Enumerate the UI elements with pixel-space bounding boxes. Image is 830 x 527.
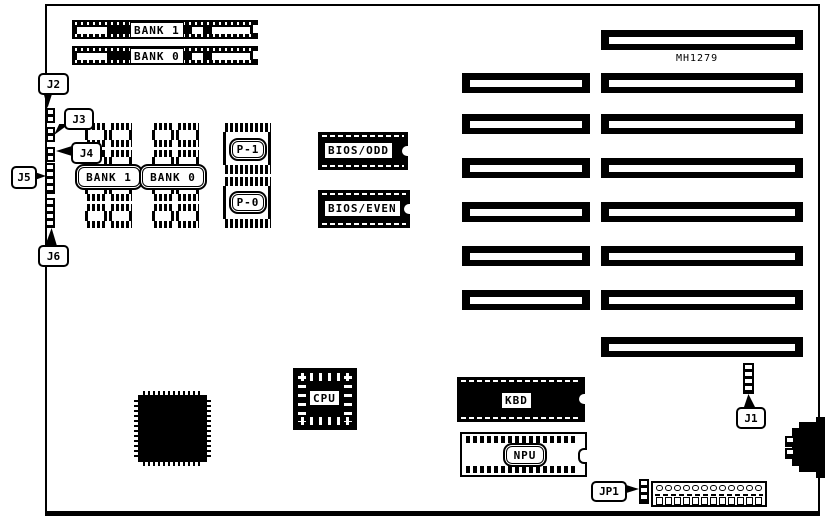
pin-dashes	[322, 135, 404, 137]
power-divider	[655, 494, 763, 496]
chip-notch	[402, 146, 408, 156]
isa-slot	[462, 202, 590, 222]
isa-slot	[462, 73, 590, 93]
isa-slot	[601, 246, 803, 266]
pin-dashes	[322, 193, 406, 195]
memory-chip	[109, 123, 132, 147]
callout-tail	[56, 146, 72, 156]
connector-label-j6: J6	[38, 245, 69, 267]
callout-tail	[744, 394, 755, 407]
power-pins-top	[656, 485, 762, 491]
chip-notch	[579, 394, 585, 404]
cpu-pins	[344, 376, 352, 422]
simm-slot-opening	[192, 27, 203, 34]
isa-slot	[601, 158, 803, 178]
memory-chip	[152, 123, 174, 147]
power-connector	[651, 481, 767, 507]
connector-label-j5: J5	[11, 166, 37, 189]
isa-slot	[462, 114, 590, 134]
chip-notch	[404, 204, 410, 214]
memory-bank1-label: BANK 1	[78, 167, 140, 187]
pin-dashes	[461, 417, 581, 419]
connector-label-j2: J2	[38, 73, 69, 95]
isa-slot	[462, 158, 590, 178]
cpu-label: CPU	[309, 390, 340, 406]
npu-label: NPU	[506, 446, 544, 464]
qfp-chip	[138, 395, 207, 462]
memory-chip	[85, 204, 107, 228]
socket-notch	[253, 25, 258, 33]
socket-notch	[578, 448, 587, 464]
connector-label-j3: J3	[64, 108, 94, 130]
memory-chip	[152, 204, 174, 228]
cpu-pins	[301, 373, 349, 381]
pin-header-j6	[45, 198, 55, 228]
simm-slot-opening	[77, 53, 107, 60]
isa-slot	[601, 290, 803, 310]
isa-slot	[601, 73, 803, 93]
isa-slot	[462, 246, 590, 266]
memory-p1-label: P-1	[232, 141, 264, 158]
isa-slot	[601, 30, 803, 50]
isa-slot	[601, 202, 803, 222]
connector-label-jp1: JP1	[591, 481, 627, 502]
simm-slot-opening	[212, 27, 250, 34]
motherboard-diagram: BANK 1 BANK 0 J2 J3 J4 J5 J6 BANK 1 BANK	[0, 0, 830, 527]
jumper-jp1	[639, 479, 649, 504]
memory-bank0-label: BANK 0	[142, 167, 204, 187]
pin-squares	[466, 466, 575, 473]
pin-dashes	[322, 223, 406, 225]
pin-header-j5	[45, 163, 55, 194]
qfp-pins	[143, 462, 202, 466]
keyboard-din-connector	[799, 422, 825, 472]
power-pins-bottom	[656, 497, 762, 505]
isa-slot	[601, 114, 803, 134]
connector-label-j4: J4	[71, 142, 102, 164]
socket-notch	[253, 51, 258, 59]
kbd-label: KBD	[501, 392, 532, 409]
din-pin-block	[785, 436, 795, 447]
memory-chip	[176, 204, 199, 228]
din-pin-block	[785, 448, 795, 459]
pin-header-j1	[743, 363, 754, 394]
board-edge-top	[45, 4, 820, 6]
simm-bank1-label: BANK 1	[130, 22, 184, 38]
simm-bank0-label: BANK 0	[130, 48, 184, 64]
keyboard-din-connector	[816, 472, 825, 478]
pin-header-j4	[46, 147, 55, 162]
memory-chip	[176, 123, 199, 147]
bios-odd-label: BIOS/ODD	[324, 142, 393, 159]
pin-dashes	[322, 165, 404, 167]
memory-chip	[109, 204, 132, 228]
pin-header-j2	[46, 108, 55, 123]
simm-slot-opening	[212, 53, 250, 60]
pin-header-j3	[46, 127, 55, 142]
cpu-pins	[301, 417, 349, 425]
cpu-pins	[298, 376, 306, 422]
qfp-pins	[207, 400, 211, 457]
pin-squares	[466, 436, 575, 443]
pin-dashes	[461, 380, 581, 382]
isa-slot	[462, 290, 590, 310]
keyboard-din-connector	[792, 428, 799, 466]
connector-label-j1: J1	[736, 407, 766, 429]
bios-even-label: BIOS/EVEN	[324, 200, 401, 217]
simm-slot-opening	[192, 53, 203, 60]
simm-slot-opening	[77, 27, 107, 34]
board-part-number: MH1279	[676, 53, 718, 64]
board-edge-bottom	[45, 511, 820, 516]
isa-slot	[601, 337, 803, 357]
memory-p0-label: P-0	[232, 194, 264, 211]
